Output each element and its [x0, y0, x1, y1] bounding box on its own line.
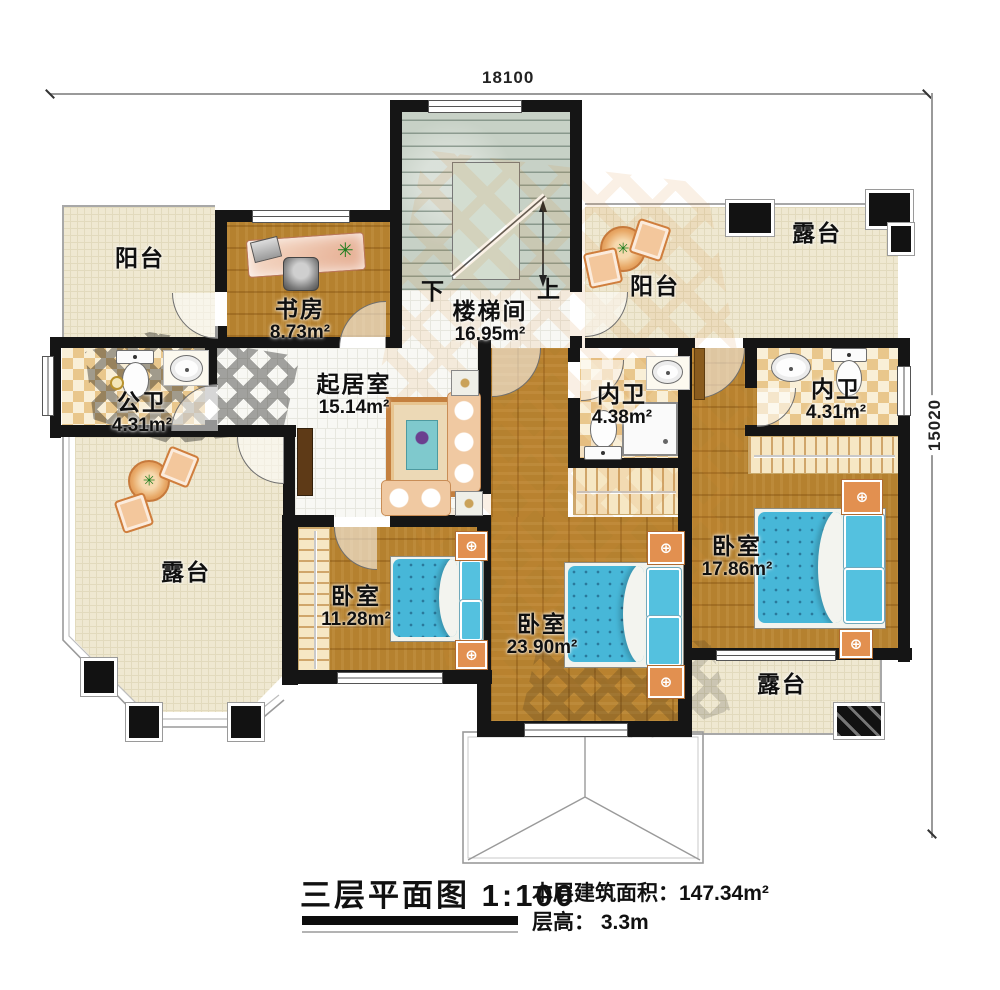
room-label-balcony-tr: 阳台 [605, 274, 705, 299]
room-label-bath-public: 公卫4.31m² [92, 390, 192, 436]
window [42, 356, 54, 416]
title-underline-thin [302, 931, 518, 933]
column [129, 706, 159, 738]
nightstand: ⊕ [648, 666, 684, 698]
room-label-bedroom-large: 卧室23.90m² [492, 612, 592, 658]
stair-down-label: 下 [421, 272, 444, 306]
room-label-terrace-tr: 露台 [767, 221, 867, 246]
column [84, 661, 114, 693]
room-label-bedroom-right: 卧室17.86m² [687, 534, 787, 580]
bed-pillow [844, 514, 884, 570]
column [891, 226, 911, 252]
window [897, 366, 911, 416]
room-label-balcony-tl: 阳台 [90, 246, 190, 271]
bed-pillow [647, 568, 681, 618]
sofa [447, 392, 481, 492]
room-label-bath-ensuite2: 内卫4.31m² [786, 377, 886, 423]
bed-pillow [647, 616, 681, 666]
floor-height-line: 层高： 3.3m [532, 906, 649, 936]
tv-cabinet [297, 428, 313, 496]
room-label-bedroom-small: 卧室11.28m² [306, 584, 406, 630]
column [231, 706, 261, 738]
wardrobe [748, 436, 900, 474]
column [869, 193, 910, 226]
nightstand: ⊕ [648, 532, 684, 564]
stair-well [452, 162, 520, 280]
nightstand: ⊕ [842, 480, 882, 514]
stairs [400, 112, 570, 290]
dimension-line-right [931, 93, 933, 838]
coffee-table [406, 420, 438, 470]
dimension-right-label: 15020 [925, 395, 945, 455]
door-leaf [694, 348, 705, 400]
floor-plan: ✳ ⊕ ⊕ ⊕ ⊕ ⊕ ⊕ 阳台 书房8.73m² [0, 0, 1000, 990]
room-label-terrace-br: 露台 [732, 672, 832, 697]
toilet-icon [584, 446, 622, 460]
room-label-stairwell: 楼梯间16.95m² [435, 299, 545, 345]
bed-pillow [460, 560, 482, 602]
side-table [455, 491, 483, 516]
sofa [381, 480, 451, 516]
window [252, 210, 350, 223]
dimension-top-label: 18100 [478, 68, 538, 88]
room-label-living: 起居室15.14m² [304, 372, 404, 418]
bed-pillow [844, 568, 884, 623]
title-underline [302, 916, 518, 925]
nightstand: ⊕ [456, 532, 487, 560]
stair-up-label: 上 [537, 270, 560, 304]
window [716, 650, 836, 661]
wardrobe [573, 467, 680, 515]
sink-icon [652, 360, 683, 384]
desk-chair [283, 257, 319, 291]
dimension-line-top [50, 93, 927, 95]
window [428, 100, 522, 113]
floor-area-line: 本层建筑面积：147.34m² [532, 877, 769, 907]
nightstand: ⊕ [840, 630, 872, 658]
bed-pillow [460, 600, 482, 641]
room-label-bath-ensuite1: 内卫4.38m² [572, 382, 672, 428]
floor-drain-icon [110, 376, 124, 390]
plant-icon: ✳ [337, 241, 354, 261]
column [837, 706, 881, 736]
nightstand: ⊕ [456, 641, 487, 669]
sink-icon [170, 355, 203, 382]
room-label-terrace-left: 露台 [136, 560, 236, 585]
room-label-study: 书房8.73m² [250, 297, 350, 343]
column [729, 203, 771, 233]
window [337, 672, 443, 684]
window [524, 723, 628, 737]
side-table [451, 370, 479, 396]
